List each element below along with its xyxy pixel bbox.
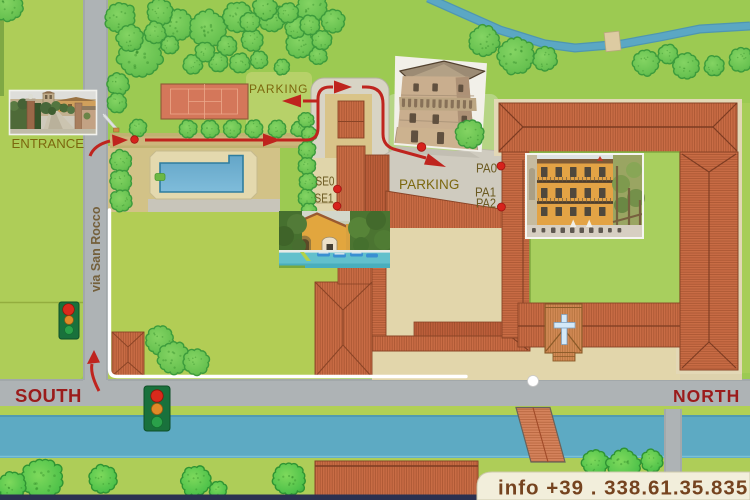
svg-text:PA0: PA0 <box>476 161 497 176</box>
svg-text:SE0: SE0 <box>316 175 335 189</box>
svg-text:PARKING: PARKING <box>249 82 308 96</box>
svg-text:SOUTH: SOUTH <box>15 385 82 406</box>
svg-text:via San Rocco: via San Rocco <box>89 206 103 292</box>
svg-text:NORTH: NORTH <box>673 386 740 406</box>
svg-text:info +39 . 338.61.35.835: info +39 . 338.61.35.835 <box>498 477 748 500</box>
svg-text:ENTRANCE: ENTRANCE <box>12 136 85 151</box>
svg-text:SE1: SE1 <box>315 192 334 206</box>
svg-text:PA2: PA2 <box>476 196 496 211</box>
svg-text:PARKING: PARKING <box>399 177 459 192</box>
